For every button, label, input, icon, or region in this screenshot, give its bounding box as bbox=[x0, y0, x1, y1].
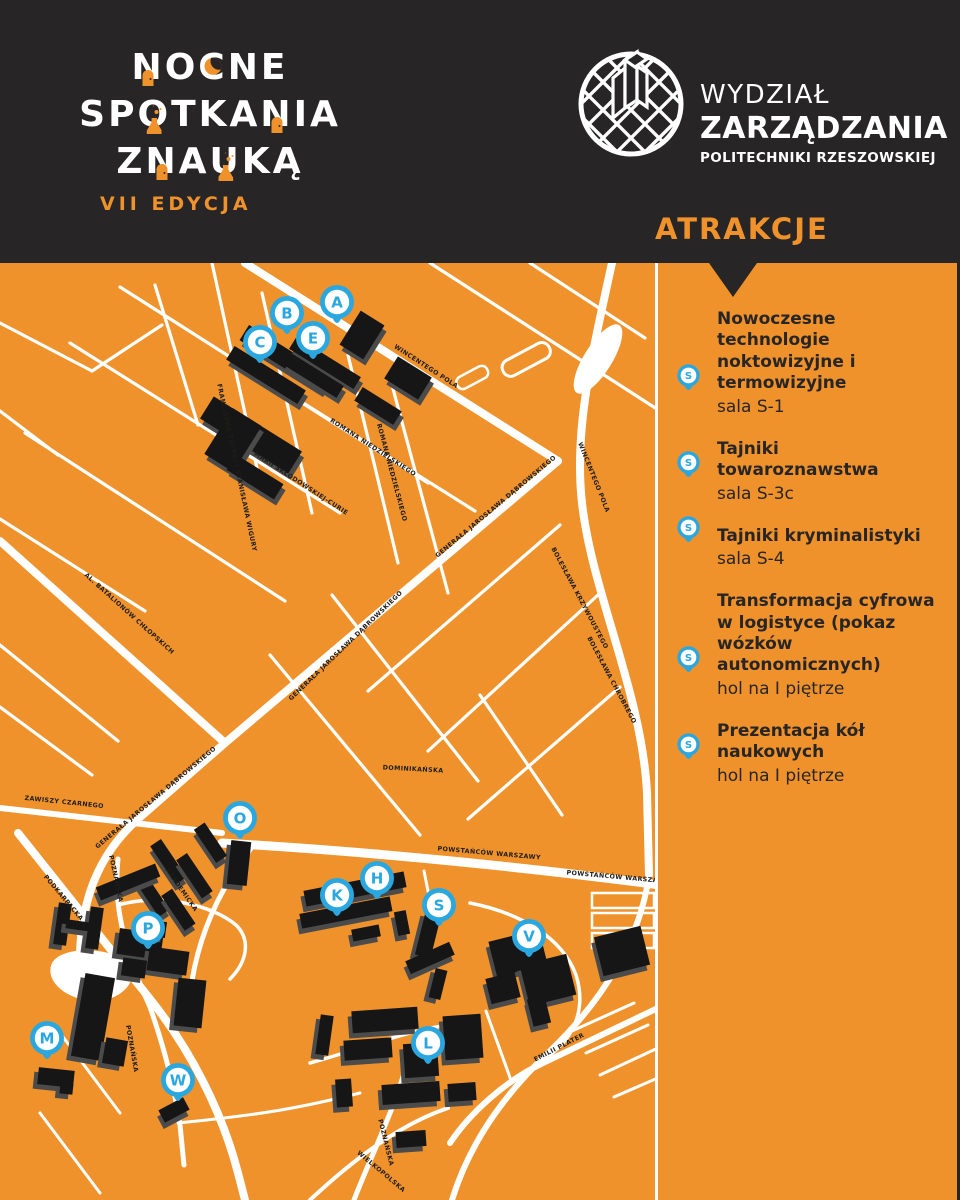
svg-text:S: S bbox=[685, 371, 692, 382]
marker-letter: P bbox=[143, 920, 154, 938]
title-line: NOCNE bbox=[60, 44, 360, 91]
attraction-title: Tajniki towaroznawstwa bbox=[717, 439, 943, 482]
location-pin-icon: S bbox=[675, 362, 702, 404]
marker-letter: O bbox=[234, 810, 247, 828]
door-icon bbox=[157, 164, 168, 180]
faculty-line3: POLITECHNIKI RZESZOWSKIEJ bbox=[700, 150, 948, 166]
header: NOCNESPOTKANIAZ NAUKĄ VII EDYCJA WYDZIAŁ… bbox=[0, 0, 960, 263]
attraction-location: hol na I piętrze bbox=[717, 765, 943, 787]
flask-icon bbox=[218, 165, 233, 181]
attraction-title: Prezentacja kół naukowych bbox=[717, 721, 943, 764]
location-pin-icon: S bbox=[675, 449, 702, 491]
svg-text:S: S bbox=[685, 523, 692, 534]
attraction-location: hol na I piętrze bbox=[717, 678, 943, 700]
flask-icon bbox=[147, 118, 162, 134]
marker-letter: S bbox=[434, 897, 445, 915]
faculty-line1: WYDZIAŁ bbox=[700, 80, 948, 110]
attraction-item[interactable]: S Tajniki kryminalistyki sala S-4 bbox=[683, 526, 943, 571]
title-line: Z NAUKĄ bbox=[60, 138, 360, 185]
campus-map[interactable]: WINCENTEGO POLAWINCENTEGO POLAROMANA NIE… bbox=[0, 263, 660, 1200]
marker-letter: A bbox=[331, 294, 343, 312]
attraction-item[interactable]: S Nowoczesne technologie noktowizyjne i … bbox=[683, 309, 943, 418]
attraction-item[interactable]: S Prezentacja kół naukowych hol na I pię… bbox=[683, 721, 943, 787]
marker-letter: L bbox=[423, 1035, 433, 1053]
marker-letter: E bbox=[308, 330, 318, 348]
attraction-location: sala S-3c bbox=[717, 483, 943, 505]
event-logo: NOCNESPOTKANIAZ NAUKĄ VII EDYCJA bbox=[60, 44, 360, 215]
svg-text:S: S bbox=[685, 740, 692, 751]
marker-letter: B bbox=[281, 305, 292, 323]
faculty-line2: ZARZĄDZANIA bbox=[700, 111, 948, 146]
attraction-title: Nowoczesne technologie noktowizyjne i te… bbox=[717, 309, 943, 395]
faculty-logo-icon bbox=[575, 40, 687, 158]
marker-letter: C bbox=[254, 334, 265, 352]
attractions-panel: S Nowoczesne technologie noktowizyjne i … bbox=[655, 263, 957, 1200]
attraction-item[interactable]: S Transformacja cyfrowa w logistyce (pok… bbox=[683, 591, 943, 700]
title-line: SPOTKANIA bbox=[60, 91, 360, 138]
location-pin-icon: S bbox=[675, 731, 702, 773]
faculty-logo-text: WYDZIAŁ ZARZĄDZANIA POLITECHNIKI RZESZOW… bbox=[700, 80, 948, 166]
door-icon bbox=[271, 117, 282, 133]
event-title: NOCNESPOTKANIAZ NAUKĄ bbox=[60, 44, 360, 185]
attraction-location: sala S-4 bbox=[717, 548, 943, 570]
attraction-location: sala S-1 bbox=[717, 396, 943, 418]
attractions-list: S Nowoczesne technologie noktowizyjne i … bbox=[683, 309, 943, 787]
door-icon bbox=[143, 70, 154, 86]
attraction-title: Tajniki kryminalistyki bbox=[717, 526, 943, 547]
attraction-item[interactable]: S Tajniki towaroznawstwa sala S-3c bbox=[683, 439, 943, 505]
marker-letter: V bbox=[523, 928, 535, 946]
location-pin-icon: S bbox=[675, 514, 702, 556]
moon-icon bbox=[205, 57, 222, 74]
marker-letter: M bbox=[40, 1030, 55, 1048]
marker-letter: K bbox=[331, 887, 344, 905]
location-pin-icon: S bbox=[675, 644, 702, 686]
pointer-triangle-icon bbox=[709, 263, 757, 297]
marker-letter: H bbox=[371, 870, 384, 888]
marker-letter: W bbox=[170, 1072, 187, 1090]
attractions-heading: ATRAKCJE bbox=[655, 212, 815, 246]
svg-text:S: S bbox=[685, 653, 692, 664]
edition-label: VII EDYCJA bbox=[100, 193, 360, 215]
svg-text:S: S bbox=[685, 458, 692, 469]
attraction-title: Transformacja cyfrowa w logistyce (pokaz… bbox=[717, 591, 943, 677]
event-poster: NOCNESPOTKANIAZ NAUKĄ VII EDYCJA WYDZIAŁ… bbox=[0, 0, 960, 1200]
